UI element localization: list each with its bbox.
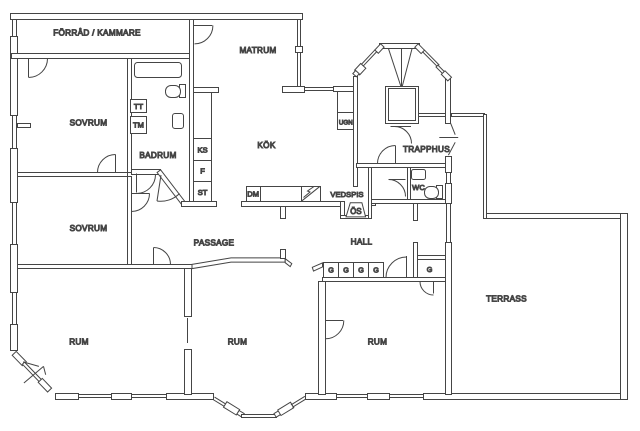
svg-text:TERRASS: TERRASS <box>486 294 527 303</box>
svg-text:RUM: RUM <box>69 338 89 347</box>
svg-text:SOVRUM: SOVRUM <box>70 224 108 233</box>
svg-text:HALL: HALL <box>351 238 373 247</box>
svg-text:WC: WC <box>412 183 425 192</box>
svg-text:RUM: RUM <box>228 338 248 347</box>
svg-text:VEDSPIS: VEDSPIS <box>330 190 363 199</box>
svg-text:FÖRRÅD / KAMMARE: FÖRRÅD / KAMMARE <box>53 28 141 38</box>
svg-text:TT: TT <box>134 102 144 111</box>
svg-text:BADRUM: BADRUM <box>139 151 176 160</box>
svg-text:TRAPPHUS: TRAPPHUS <box>403 145 450 154</box>
svg-text:DM: DM <box>247 189 259 198</box>
svg-text:MATRUM: MATRUM <box>239 46 276 55</box>
svg-text:KS: KS <box>197 146 207 155</box>
svg-text:UGN: UGN <box>339 120 353 127</box>
svg-text:G: G <box>328 265 334 274</box>
svg-text:ÖS: ÖS <box>350 207 361 216</box>
svg-text:G: G <box>358 265 364 274</box>
svg-text:G: G <box>343 265 349 274</box>
svg-text:PASSAGE: PASSAGE <box>194 239 235 248</box>
svg-text:F: F <box>200 167 205 176</box>
svg-text:RUM: RUM <box>368 338 388 347</box>
svg-text:ST: ST <box>198 188 208 197</box>
svg-text:G: G <box>427 265 433 274</box>
svg-text:SOVRUM: SOVRUM <box>70 118 108 127</box>
svg-text:KÖK: KÖK <box>257 140 275 150</box>
svg-text:TM: TM <box>133 121 144 130</box>
svg-text:G: G <box>373 265 379 274</box>
